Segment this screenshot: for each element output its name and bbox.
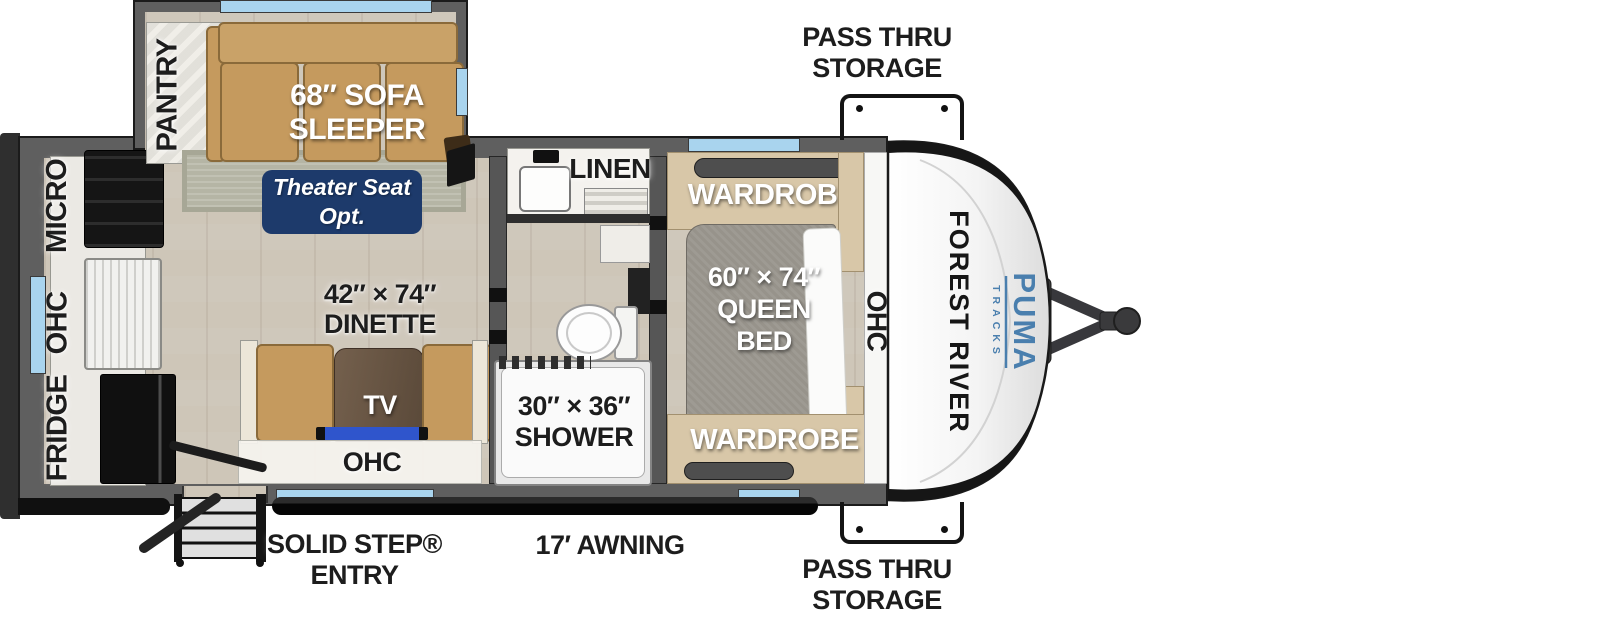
rear-frame [0,133,20,519]
wardrobe-bottom-rod [684,462,794,480]
bath-door-hinge [489,330,507,344]
model-sub-text: TRACKS [990,285,1002,359]
theater-badge-line1: Theater Seat [273,173,411,202]
bed-label-line2: QUEEN BED [688,294,840,358]
tv-label: TV [350,390,410,420]
pantry-label: PANTRY [146,30,190,160]
tv-label-text: TV [363,390,397,421]
micro-label-text: MICRO [42,159,74,253]
pass-thru-bottom-line1: PASS THRU [802,554,952,585]
pass-thru-storage-door-top [840,94,964,140]
pass-thru-top-line1: PASS THRU [802,22,952,53]
awning-label-text: 17′ AWNING [536,530,685,561]
model-text: PUMA [1007,272,1042,371]
shower-label-line1: 30″ × 36″ [518,391,630,422]
bed-label-line1: 60″ × 74″ [708,262,820,294]
solid-step-line1: SOLID STEP® [267,529,442,560]
pass-thru-storage-label-top: PASS THRU STORAGE [782,18,972,88]
dinette-label-line1: 42″ × 74″ [324,279,436,309]
wardrobe-top-label-text: WARDROBE [688,179,856,212]
dinette-label-line2: DINETTE [324,309,436,339]
awning-bar [272,497,818,515]
bedroom-door-hinge [649,216,667,230]
pantry-label-text: PANTRY [152,38,184,151]
slideout-side-window [456,68,468,116]
bath-door-hinge [489,288,507,302]
tv-unit [316,427,428,440]
linen-lower-cabinet [600,225,650,263]
wardrobe-bottom-label: WARDROBE [682,422,867,458]
sofa-label-line1: 68″ SOFA [290,79,424,113]
dinette-label: 42″ × 74″ DINETTE [305,276,455,342]
solid-step-entry-label: SOLID STEP® ENTRY [252,528,457,592]
rear-wall-window [30,276,46,374]
model-logo: PUMA TRACKS [990,272,1042,371]
pass-thru-storage-door-bottom [840,502,964,544]
brand-text: FOREST RIVER [944,210,974,434]
sofa-backrest [218,22,458,64]
dinette-ohc-label-text: OHC [343,447,402,478]
linen-vent-cabinet [584,188,648,215]
floorplan-canvas: MICRO OHC FRIDGE PANTRY 68″ SOFA SLEEPER… [0,0,1600,625]
bath-sink [519,166,571,212]
wardrobe-bottom-label-text: WARDROBE [690,424,858,457]
awning-label: 17′ AWNING [520,528,700,562]
stove-cooktop [84,150,164,248]
pass-thru-bottom-line2: STORAGE [812,585,942,616]
sofa-label-line2: SLEEPER [289,113,426,147]
shower-label: 30″ × 36″ SHOWER [500,386,648,458]
dinette-bench-back-right [472,340,488,444]
bedroom-door-hinge [649,300,667,314]
theater-badge-line2: Opt. [319,202,365,231]
bath-counter-edge [507,214,650,223]
front-cap: FOREST RIVER PUMA TRACKS [878,126,1148,516]
hitch-coupler-knob [1114,308,1140,334]
slideout-window [220,0,432,13]
bed-side-cabinet-top [838,152,864,272]
pass-thru-storage-label-bottom: PASS THRU STORAGE [782,550,972,620]
kitchen-ohc-label-text: OHC [42,292,74,355]
dinette-ohc-label: OHC [330,446,414,478]
theater-seat-option-badge: Theater Seat Opt. [262,170,422,234]
bath-faucet [533,150,559,163]
shower-label-line2: SHOWER [515,422,634,453]
fridge-label-text: FRIDGE [42,375,74,482]
queen-bed-label: 60″ × 74″ QUEEN BED [688,270,840,350]
sofa-label: 68″ SOFA SLEEPER [262,74,452,152]
pass-thru-top-line2: STORAGE [812,53,942,84]
refrigerator [100,374,176,484]
solid-step-line2: ENTRY [310,560,398,591]
linen-label-text: LINEN [569,153,651,185]
kitchen-sink [84,258,162,370]
toilet-seat [566,312,612,354]
fridge-label: FRIDGE [36,368,80,488]
micro-label: MICRO [36,156,80,256]
shower-door-track [499,356,591,369]
linen-label: LINEN [568,150,652,188]
bedroom-top-window [688,138,800,152]
